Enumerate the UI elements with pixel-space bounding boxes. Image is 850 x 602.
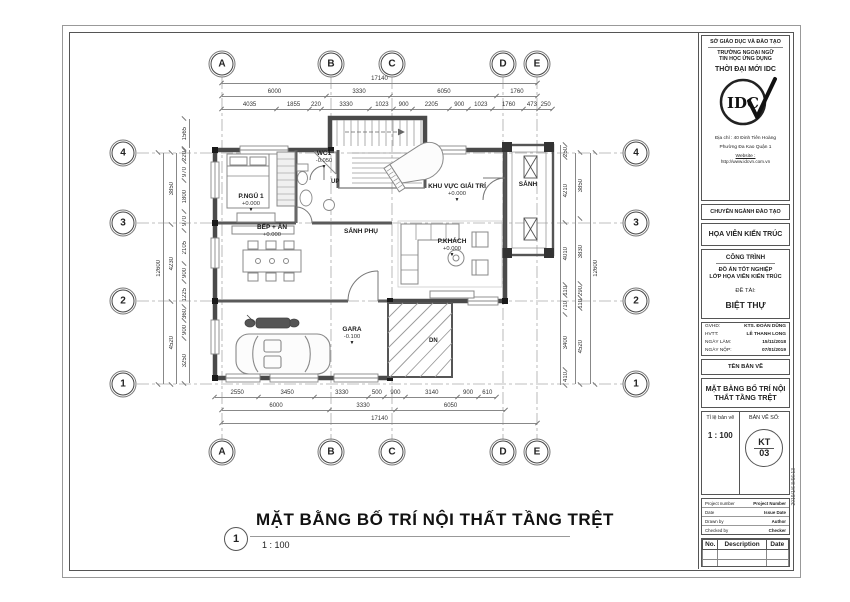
room-name: WC1 — [317, 150, 331, 157]
dimension-label: 6050 — [437, 89, 450, 95]
dimension-label: 17140 — [371, 76, 388, 82]
dimension-segment: 3330 — [322, 102, 370, 110]
dimension-label: 220 — [311, 102, 321, 108]
room-label-kitchen: BẾP + ĂN +0.000 — [257, 224, 287, 239]
idc-logo-icon: IDC — [713, 75, 779, 129]
dimension-segment: 1800 — [180, 181, 189, 211]
dimension-segment: 3330 — [315, 390, 369, 398]
grid-bubble-col-e-top: E — [526, 53, 549, 76]
topic-label: ĐỀ TÀI: — [702, 288, 789, 294]
dimension-label: 250 — [541, 102, 551, 108]
drawing-sheet: A B C D E A B C D E 4 3 2 1 4 3 2 1 1714… — [0, 0, 850, 602]
dimension-label: 900 — [454, 102, 464, 108]
dimension-label: 3250 — [182, 354, 188, 367]
dimension-label: 900 — [390, 390, 400, 396]
grid-bubble-col-d-bottom: D — [492, 441, 515, 464]
dimension-label: 900 — [463, 390, 473, 396]
meta-label: Date — [705, 510, 714, 515]
meta-section: Project number Project Number Date Issue… — [701, 498, 790, 535]
dimension-label: 500 — [372, 390, 382, 396]
dimension-label: 3450 — [280, 390, 293, 396]
org-department: SỞ GIÁO DỤC VÀ ĐÀO TẠO — [708, 39, 783, 48]
grid-bubble-col-c-top: C — [381, 53, 404, 76]
dimension-segment: 3330 — [330, 403, 396, 411]
dimension-segment: 1023 — [469, 102, 493, 110]
meta-row-drawn-by: Drawn by Author — [702, 517, 789, 526]
dimension-label: 1023 — [474, 102, 487, 108]
dimension-segment: 6050 — [391, 89, 497, 97]
dimension-label: 3330 — [339, 102, 352, 108]
meta-value: Issue Date — [764, 510, 786, 515]
project-section: CÔNG TRÌNH ĐỒ ÁN TỐT NGHIỆP LỚP HỌA VIÊN… — [701, 249, 790, 319]
svg-text:IDC: IDC — [727, 94, 759, 112]
dimension-segment: 3450 — [259, 390, 314, 398]
dimension-label: 900 — [182, 268, 188, 278]
website-url[interactable]: http://www.idcvn.com.vn — [702, 159, 789, 164]
meta-label: Project number — [705, 501, 735, 506]
dimension-label: 2550 — [231, 390, 244, 396]
dimension-segment: 1760 — [493, 102, 525, 110]
org-address-line1: Địa chỉ : 40 Đinh Tiên Hoàng — [702, 136, 789, 142]
dimension-label: 6000 — [268, 89, 281, 95]
grid-bubble-col-b-top: B — [320, 53, 343, 76]
level-mark-icon: ▼ — [238, 208, 263, 213]
dimension-segment: 3850 — [167, 153, 176, 225]
project-line1: ĐỒ ÁN TỐT NGHIỆP — [702, 267, 789, 275]
dimension-segment: 4230 — [167, 225, 176, 302]
dimension-segment: 2105 — [180, 231, 189, 264]
room-name: KHU VỰC GIẢI TRÍ — [428, 183, 486, 190]
dimension-label: 1760 — [510, 89, 523, 95]
dimension-label: 473 — [527, 102, 537, 108]
dimension-label: 1225 — [182, 288, 188, 301]
dimension-segment: 250 — [539, 102, 552, 110]
rev-header-no: No. — [703, 540, 718, 550]
dimension-segment: 900 — [458, 390, 479, 398]
stair-up-label: UP — [331, 179, 339, 185]
dimension-segment: 17140 — [222, 76, 537, 84]
rev-empty-row — [703, 560, 789, 567]
drawing-number-bubble: 1 — [224, 527, 248, 551]
revision-table-box: No. Description Date — [701, 538, 790, 567]
sheet-number-value: 03 — [759, 449, 769, 459]
dimension-segment: 4520 — [576, 309, 585, 384]
grid-bubble-row-4-right: 4 — [625, 142, 648, 165]
dept-value-box: HỌA VIÊN KIẾN TRÚC — [701, 223, 790, 246]
grid-bubble-col-e-bottom: E — [526, 441, 549, 464]
dim-col-left-total: 12600 — [154, 153, 164, 384]
grid-bubble-row-3-left: 3 — [112, 212, 135, 235]
dimension-segment: 4520 — [167, 302, 176, 384]
dimension-segment: 4210 — [561, 158, 570, 223]
grid-bubble-col-d-top: D — [492, 53, 515, 76]
dimension-label: 4520 — [578, 340, 584, 353]
scale-label: Tỉ lệ bản vẽ — [702, 415, 739, 421]
drawing-title-rule — [250, 536, 570, 537]
dimension-segment: 900 — [385, 390, 406, 398]
grid-bubble-col-a-bottom: A — [211, 441, 234, 464]
info-value: KTS. ĐOÀN DŨNG — [744, 324, 786, 329]
revision-table: No. Description Date — [702, 539, 789, 567]
dimension-label: 3330 — [335, 390, 348, 396]
room-name: BẾP + ĂN — [257, 224, 287, 231]
dimension-segment: 17140 — [222, 416, 537, 424]
dim-row-bottom-detail: 2550345033305009003140900610 — [215, 388, 496, 398]
room-name: P.KHÁCH — [438, 238, 467, 245]
scale-sheetno-section: Tỉ lệ bản vẽ 1 : 100 BẢN VẼ SỐ: KT 03 — [701, 411, 790, 495]
info-row-date-made: NGÀY LÀM: 15/11/2018 — [702, 339, 789, 347]
dim-col-left-top: 1565 — [180, 119, 190, 148]
dimension-label: 1855 — [287, 102, 300, 108]
dimension-segment: 4010 — [561, 223, 570, 285]
meta-value: Checker — [769, 528, 786, 533]
info-value: LÊ THANH LONG — [747, 332, 786, 337]
dept-value: HỌA VIÊN KIẾN TRÚC — [702, 224, 789, 245]
dimension-label: 1800 — [182, 190, 188, 203]
info-row-gvhd: GVHD: KTS. ĐOÀN DŨNG — [702, 323, 789, 331]
info-label: HVTT: — [705, 332, 718, 337]
sheetname-value-box: MẶT BẰNG BỐ TRÍ NỘI THẤT TẦNG TRỆT — [701, 378, 790, 409]
grid-bubble-row-3-right: 3 — [625, 212, 648, 235]
dimension-segment: 3850 — [576, 153, 585, 219]
info-label: NGÀY NỘP: — [705, 348, 732, 353]
title-block: SỞ GIÁO DỤC VÀ ĐÀO TẠO TRƯỜNG NGOẠI NGỮ … — [698, 33, 792, 569]
room-level: +0.000 — [257, 232, 287, 239]
meta-row-date: Date Issue Date — [702, 508, 789, 517]
dimension-label: 3850 — [169, 182, 175, 195]
dim-col-right-mid: 385038302901104520 — [575, 153, 585, 384]
info-row-hvtt: HVTT: LÊ THANH LONG — [702, 331, 789, 339]
meta-value: Author — [772, 519, 786, 524]
dimension-segment: 3400 — [561, 315, 570, 370]
dimension-label: 1760 — [502, 102, 515, 108]
dimension-label: 3850 — [578, 179, 584, 192]
dimension-segment: 2550 — [215, 390, 259, 398]
room-label-hall: SẢNH PHỤ — [344, 228, 378, 236]
dimension-label: 900 — [182, 325, 188, 335]
dim-col-left-mid: 385042304520 — [167, 153, 177, 384]
room-label-entertainment: KHU VỰC GIẢI TRÍ +0.000 ▼ — [428, 183, 486, 203]
info-value: 15/11/2018 — [762, 340, 786, 345]
dimension-label: 12600 — [593, 260, 599, 277]
dimension-segment: 12600 — [154, 153, 163, 384]
room-label-living: P.KHÁCH +0.000 ▼ — [438, 238, 467, 258]
dimension-segment: 12600 — [591, 153, 600, 384]
meta-row-checked-by: Checked by Checker — [702, 526, 789, 534]
dimension-segment: 1855 — [277, 102, 310, 110]
dimension-label: 6000 — [269, 403, 282, 409]
level-mark-icon: ▼ — [342, 341, 361, 346]
info-label: NGÀY LÀM: — [705, 340, 731, 345]
grid-bubble-row-4-left: 4 — [112, 142, 135, 165]
grid-bubble-col-b-bottom: B — [320, 441, 343, 464]
room-name: GARA — [342, 326, 361, 333]
level-mark-icon: ▼ — [428, 198, 486, 203]
grid-bubble-row-2-right: 2 — [625, 290, 648, 313]
room-label-porch: SẢNH — [519, 181, 537, 189]
ramp-down-label: DN — [429, 338, 438, 344]
dimension-label: 17140 — [371, 416, 388, 422]
dimension-segment: 2205 — [413, 102, 449, 110]
dimension-label: 4520 — [169, 336, 175, 349]
dimension-segment: 610 — [479, 390, 496, 398]
org-address-line2: Phường Đa Kao Quận 1 — [702, 145, 789, 151]
dim-row-top-detail: 4035185522033301023900220590010231760473… — [222, 100, 552, 110]
project-label: CÔNG TRÌNH — [716, 254, 775, 264]
dim-col-right-total: 12600 — [590, 153, 600, 384]
rev-header-date: Date — [766, 540, 788, 550]
dimension-label: 610 — [482, 390, 492, 396]
org-school-line2: TIN HỌC ỨNG DỤNG — [702, 56, 789, 63]
dimension-label: 6050 — [444, 403, 457, 409]
dimension-segment: 6000 — [222, 89, 327, 97]
grid-bubble-row-1-left: 1 — [112, 373, 135, 396]
meta-label: Drawn by — [705, 519, 724, 524]
dim-row-bottom-total: 17140 — [222, 414, 537, 424]
sheetno-cell: BẢN VẼ SỐ: KT 03 — [740, 412, 789, 494]
level-mark-icon: ▼ — [438, 253, 467, 258]
room-label-bedroom: P.NGỦ 1 +0.000 ▼ — [238, 193, 263, 213]
dimension-label: 710 — [563, 301, 569, 311]
dimension-label: 2105 — [182, 241, 188, 254]
dimension-segment: 1760 — [497, 89, 537, 97]
grid-bubble-col-c-bottom: C — [381, 441, 404, 464]
dimension-label: 1565 — [182, 127, 188, 140]
dimension-segment: 1023 — [370, 102, 394, 110]
project-line2: LỚP HỌA VIÊN KIẾN TRÚC — [702, 274, 789, 282]
dimension-segment: 1565 — [180, 119, 189, 148]
sheetname-value: MẶT BẰNG BỐ TRÍ NỘI THẤT TẦNG TRỆT — [702, 379, 789, 408]
dept-label: CHUYÊN NGÀNH ĐÀO TẠO — [702, 205, 789, 219]
dimension-label: 2205 — [425, 102, 438, 108]
sheetname-line1: MẶT BẰNG BỐ TRÍ NỘI — [706, 384, 786, 393]
dim-row-top-mid: 6000333060501760 — [222, 87, 537, 97]
dimension-label: 970 — [182, 167, 188, 177]
dimension-label: 3330 — [352, 89, 365, 95]
dimension-label: 970 — [182, 216, 188, 226]
dimension-segment: 6050 — [396, 403, 505, 411]
org-section: SỞ GIÁO DỤC VÀ ĐÀO TẠO TRƯỜNG NGOẠI NGỮ … — [701, 35, 790, 201]
dimension-label: 410 — [563, 372, 569, 382]
dimension-segment: 900 — [450, 102, 469, 110]
dimension-segment: 500 — [369, 390, 385, 398]
dimension-segment: 3330 — [327, 89, 391, 97]
grid-bubble-col-a-top: A — [211, 53, 234, 76]
dimension-label: 3830 — [578, 245, 584, 258]
sheetname-label-box: TÊN BẢN VẼ — [701, 359, 790, 375]
room-label-garage: GARA -0.100 ▼ — [342, 326, 361, 346]
dimension-label: 3140 — [425, 390, 438, 396]
info-label: GVHD: — [705, 324, 720, 329]
dimension-segment: 3250 — [180, 339, 189, 383]
org-brand: THỜI ĐẠI MỚI IDC — [702, 66, 789, 73]
dimension-segment: 3140 — [406, 390, 458, 398]
grid-bubble-row-2-left: 2 — [112, 290, 135, 313]
plot-timestamp: 2019/1/6 8:56:13 — [791, 468, 797, 506]
drawing-scale: 1 : 100 — [262, 540, 290, 550]
drawing-title: MẶT BẰNG BỐ TRÍ NỘI THẤT TẦNG TRỆT — [256, 510, 614, 530]
dimension-label: 4035 — [243, 102, 256, 108]
meta-label: Checked by — [705, 528, 728, 533]
dept-label-box: CHUYÊN NGÀNH ĐÀO TẠO — [701, 204, 790, 220]
sheet-inner-border — [69, 32, 794, 571]
sheet-number-bubble: KT 03 — [745, 429, 783, 467]
dimension-segment: 4035 — [222, 102, 277, 110]
dimension-label: 3330 — [356, 403, 369, 409]
dim-col-right-detail: 250421040101107103400410 — [560, 145, 570, 385]
info-section: GVHD: KTS. ĐOÀN DŨNG HVTT: LÊ THANH LONG… — [701, 322, 790, 356]
sheetno-label: BẢN VẼ SỐ: — [749, 415, 780, 421]
level-mark-icon: ▼ — [316, 165, 332, 170]
dimension-segment: 3830 — [576, 219, 585, 284]
room-name: P.NGỦ 1 — [238, 193, 263, 200]
rev-empty-row — [703, 550, 789, 560]
room-name: SẢNH — [519, 181, 537, 188]
dim-row-top-total: 17140 — [222, 74, 537, 84]
dim-row-bottom-mid: 600033306050 — [222, 401, 505, 411]
meta-value: Project Number — [753, 501, 786, 506]
info-row-date-submitted: NGÀY NỘP: 07/01/2019 — [702, 347, 789, 355]
dimension-segment: 6000 — [222, 403, 330, 411]
grid-bubble-row-1-right: 1 — [625, 373, 648, 396]
rev-header-description: Description — [718, 540, 766, 550]
dimension-label: 900 — [399, 102, 409, 108]
dimension-label: 4230 — [169, 257, 175, 270]
dimension-segment: 900 — [394, 102, 413, 110]
dim-col-left-detail: 2209701800970210590012253609003250 — [180, 150, 190, 383]
topic-value: BIỆT THỰ — [702, 300, 789, 310]
scale-value: 1 : 100 — [702, 431, 739, 440]
info-value: 07/01/2019 — [762, 348, 786, 353]
sheetname-label: TÊN BẢN VẼ — [702, 360, 789, 374]
dimension-label: 3400 — [563, 336, 569, 349]
dimension-label: 12600 — [156, 260, 162, 277]
room-name: SẢNH PHỤ — [344, 228, 378, 235]
dimension-segment: 410 — [561, 370, 570, 385]
dimension-label: 1023 — [375, 102, 388, 108]
meta-row-project: Project number Project Number — [702, 499, 789, 508]
room-label-wc: WC1 -0.050 ▼ — [316, 150, 332, 170]
dimension-label: 4210 — [563, 184, 569, 197]
sheetname-line2: THẤT TẦNG TRỆT — [714, 393, 776, 402]
scale-cell: Tỉ lệ bản vẽ 1 : 100 — [702, 412, 740, 494]
dimension-label: 4010 — [563, 247, 569, 260]
